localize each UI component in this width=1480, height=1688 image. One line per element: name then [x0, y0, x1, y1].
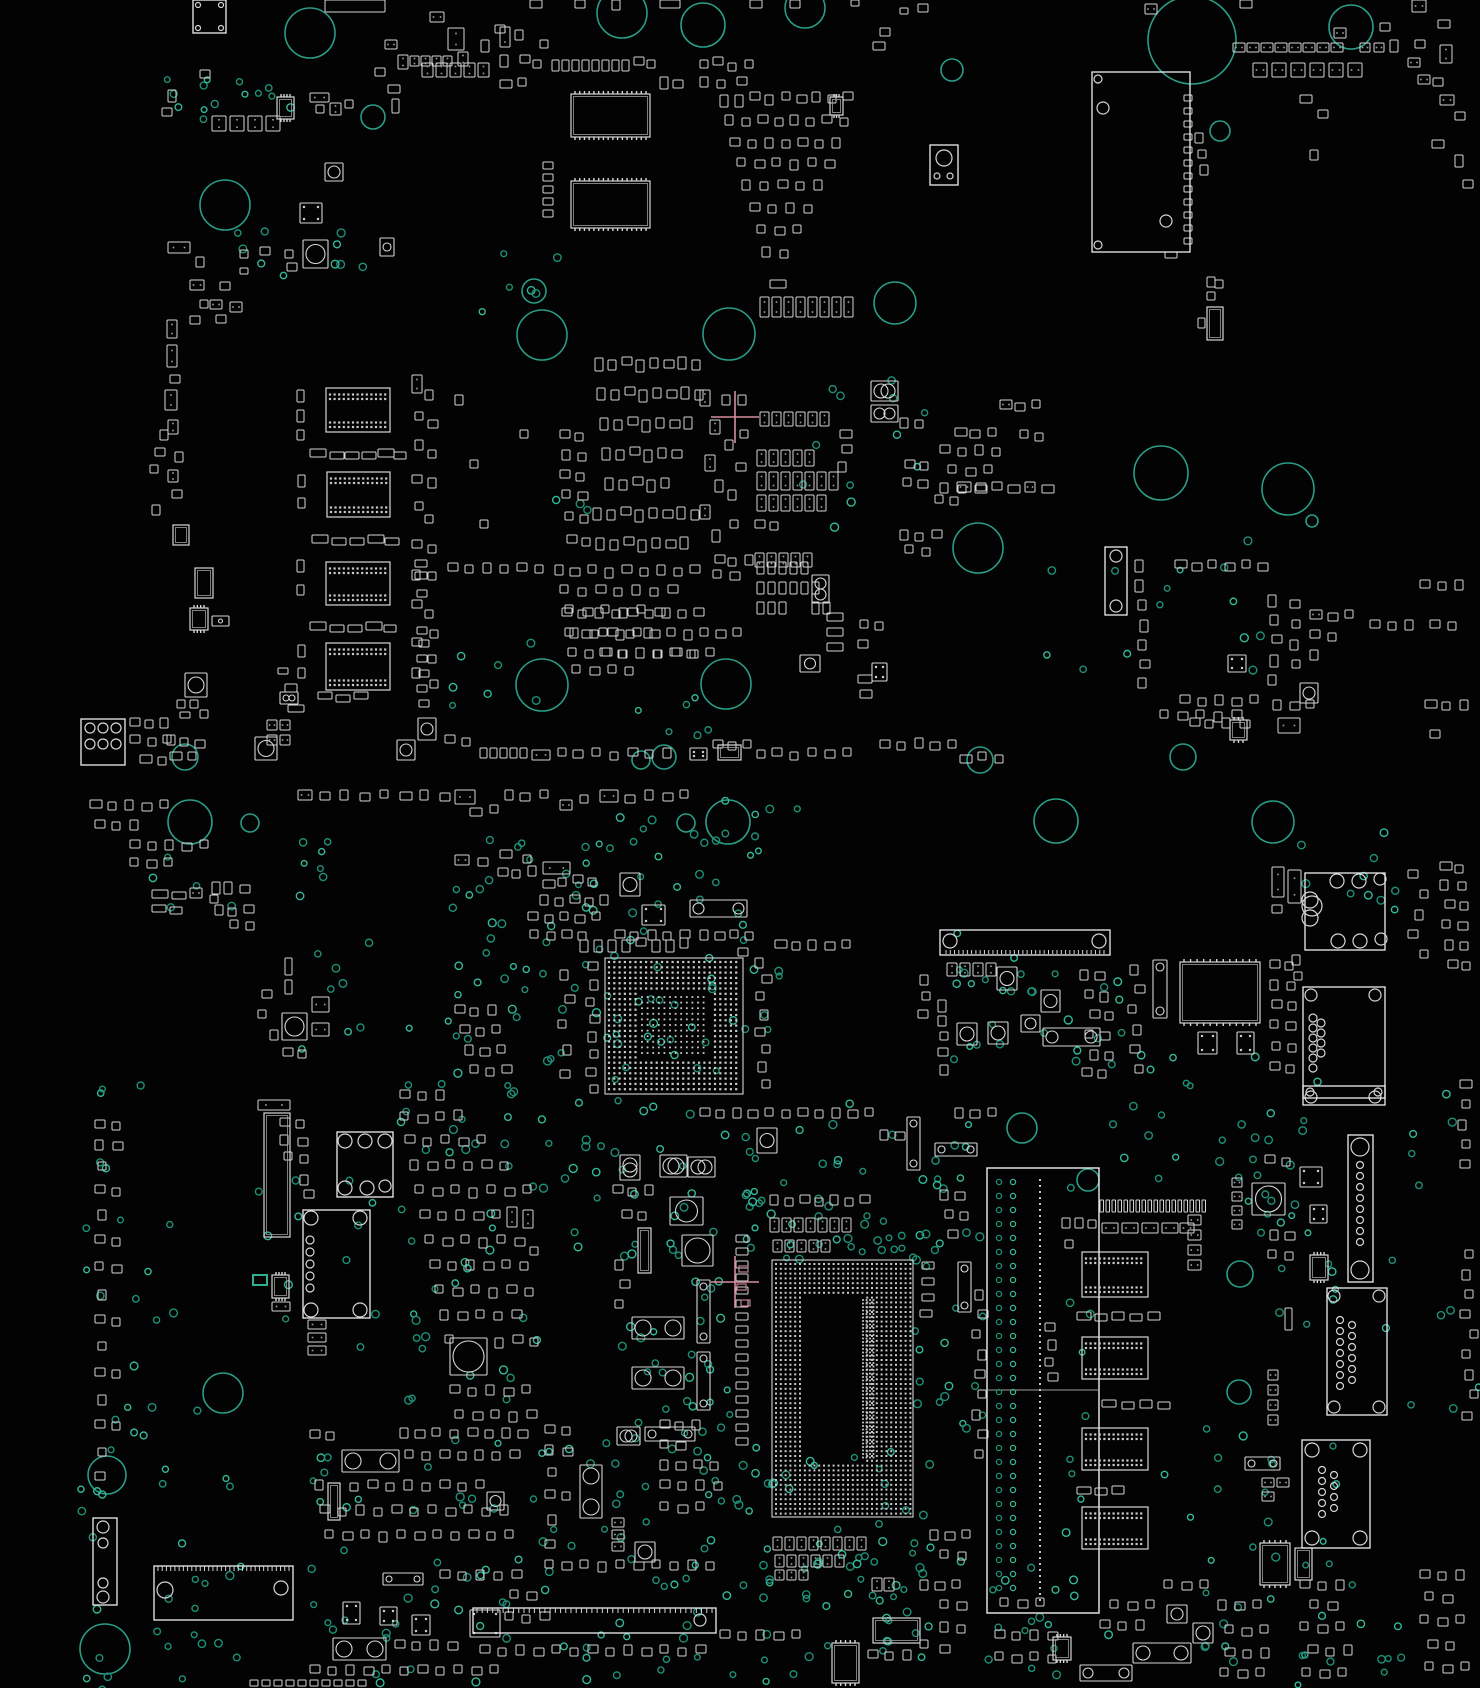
ic-layer: [173, 91, 1328, 1686]
quad-part-layer: [300, 203, 1327, 1637]
pcb-board-canvas[interactable]: [0, 0, 1480, 1688]
via-layer: [78, 77, 1480, 1688]
teal-fill-layer: [253, 1275, 267, 1285]
part-layer: [90, 0, 1478, 1678]
boardview-viewport[interactable]: [0, 0, 1480, 1688]
coil-layer: [185, 163, 1318, 1643]
crosshair-layer: [711, 391, 759, 1308]
connector-layer: [81, 0, 1387, 1633]
